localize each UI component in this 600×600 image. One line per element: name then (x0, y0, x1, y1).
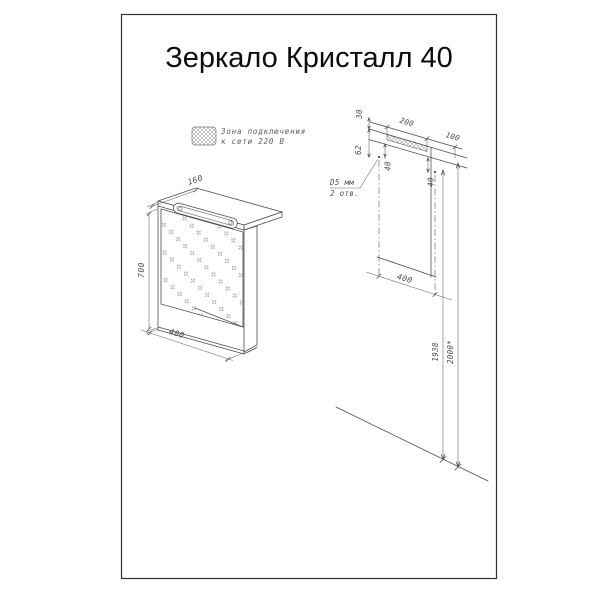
cabinet-right-side (244, 226, 257, 352)
holes-note-line2: 2 отв. (330, 189, 359, 198)
drawing-canvas: Зеркало Кристалл 40 Зона подключения к с… (0, 0, 600, 600)
page-title: Зеркало Кристалл 40 (165, 42, 453, 74)
hole-inset-left-label: 40 (384, 161, 393, 171)
overall-height-label: 2000* (446, 340, 455, 364)
holes-note-line1: D5 мм (329, 178, 354, 187)
drawing-page: Зеркало Кристалл 40 Зона подключения к с… (0, 0, 600, 600)
top-offset-label: 30 (355, 109, 364, 120)
legend-line-1: Зона подключения (220, 127, 306, 136)
legend-line-2: к сети 220 В (221, 137, 285, 146)
cabinet-height-label: 700 (137, 262, 146, 278)
legend-hatch-swatch (192, 127, 216, 145)
hole-offset-label: 62 (354, 145, 363, 155)
holes-height-label: 1938 (431, 342, 440, 361)
